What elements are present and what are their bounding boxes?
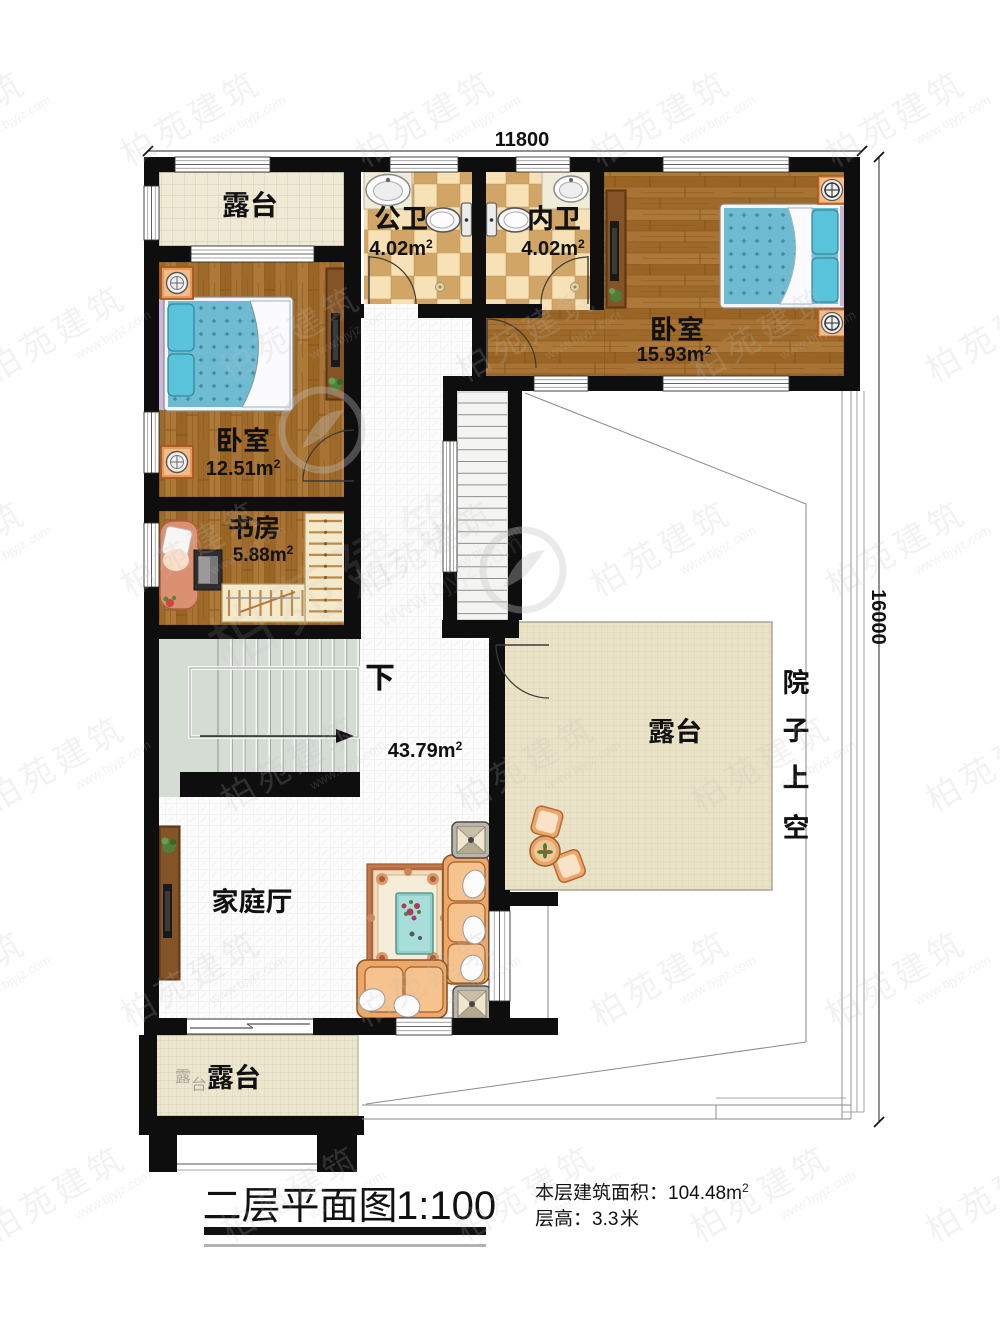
svg-text:43.79m2: 43.79m2	[388, 739, 463, 762]
svg-text:11800: 11800	[495, 129, 550, 151]
svg-text:3.3: 3.3	[592, 1209, 618, 1230]
svg-text:16000: 16000	[867, 589, 889, 645]
svg-text:4.02m2: 4.02m2	[369, 237, 433, 260]
svg-text:12.51m2: 12.51m2	[206, 457, 281, 480]
svg-text:15.93m2: 15.93m2	[637, 343, 712, 366]
svg-text:4.02m2: 4.02m2	[521, 237, 585, 260]
